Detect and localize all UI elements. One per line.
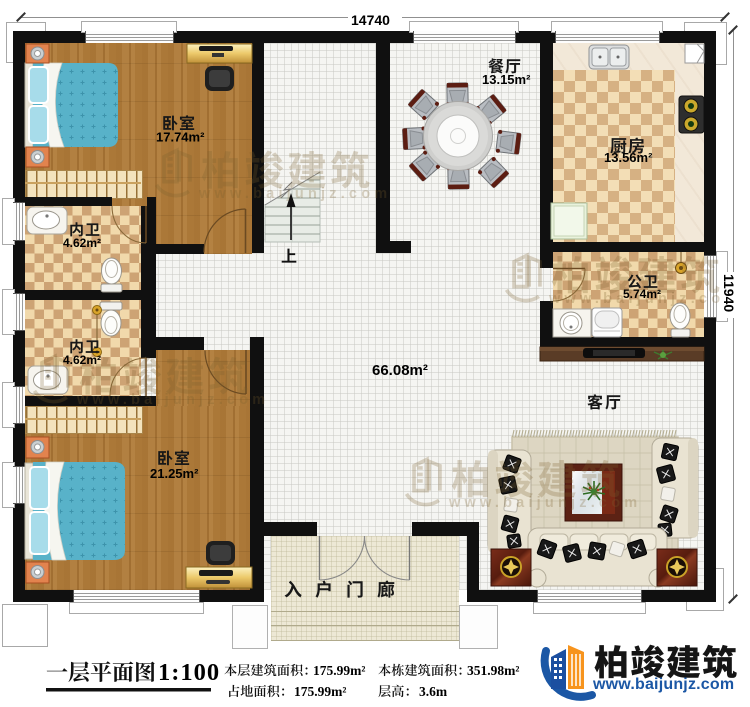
svg-text:21.25m²: 21.25m² <box>150 466 199 481</box>
svg-text:13.15m²: 13.15m² <box>482 72 531 87</box>
svg-text:351.98m²: 351.98m² <box>467 663 519 678</box>
svg-text:4.62m²: 4.62m² <box>63 236 101 250</box>
svg-text:3.6m: 3.6m <box>419 684 448 699</box>
svg-text:13.56m²: 13.56m² <box>604 150 653 165</box>
svg-text:www.baijunjz.com: www.baijunjz.com <box>448 495 641 511</box>
svg-text:www.baijunjz.com: www.baijunjz.com <box>76 392 269 408</box>
svg-text:17.74m²: 17.74m² <box>156 130 205 145</box>
svg-text:14740: 14740 <box>351 12 390 28</box>
svg-text:66.08m²: 66.08m² <box>372 362 428 379</box>
svg-text:11940: 11940 <box>721 274 737 312</box>
svg-text:175.99m²: 175.99m² <box>294 684 346 699</box>
svg-text:www.baijunjz.com: www.baijunjz.com <box>198 186 391 202</box>
svg-text:175.99m²: 175.99m² <box>313 663 365 678</box>
svg-text:4.62m²: 4.62m² <box>63 353 101 367</box>
svg-text:www.baijunjz.com: www.baijunjz.com <box>592 676 734 693</box>
svg-text:5.74m²: 5.74m² <box>623 287 661 301</box>
svg-text:1:100: 1:100 <box>158 659 220 686</box>
